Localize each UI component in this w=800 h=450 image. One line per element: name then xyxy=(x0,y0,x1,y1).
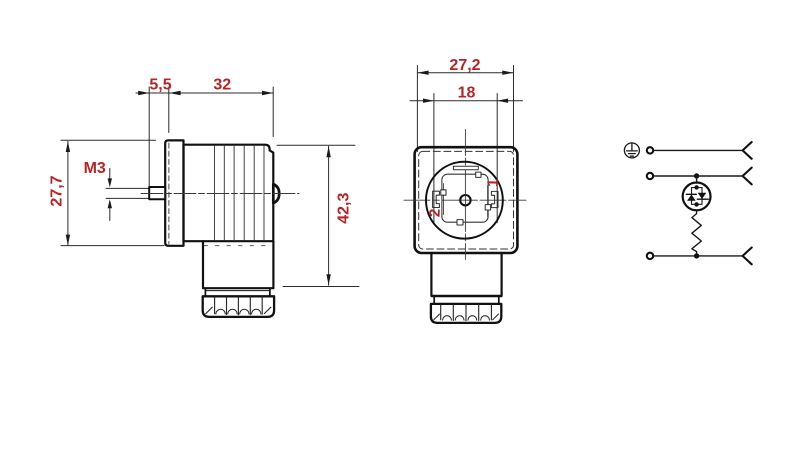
svg-text:5,5: 5,5 xyxy=(149,77,171,94)
svg-text:32: 32 xyxy=(213,77,231,94)
svg-text:1: 1 xyxy=(484,178,501,187)
svg-text:27,7: 27,7 xyxy=(49,175,66,206)
svg-text:18: 18 xyxy=(458,85,476,102)
svg-text:2: 2 xyxy=(426,208,443,217)
svg-text:27,2: 27,2 xyxy=(449,57,480,74)
svg-text:M3: M3 xyxy=(84,160,106,177)
svg-text:42,3: 42,3 xyxy=(336,193,353,224)
